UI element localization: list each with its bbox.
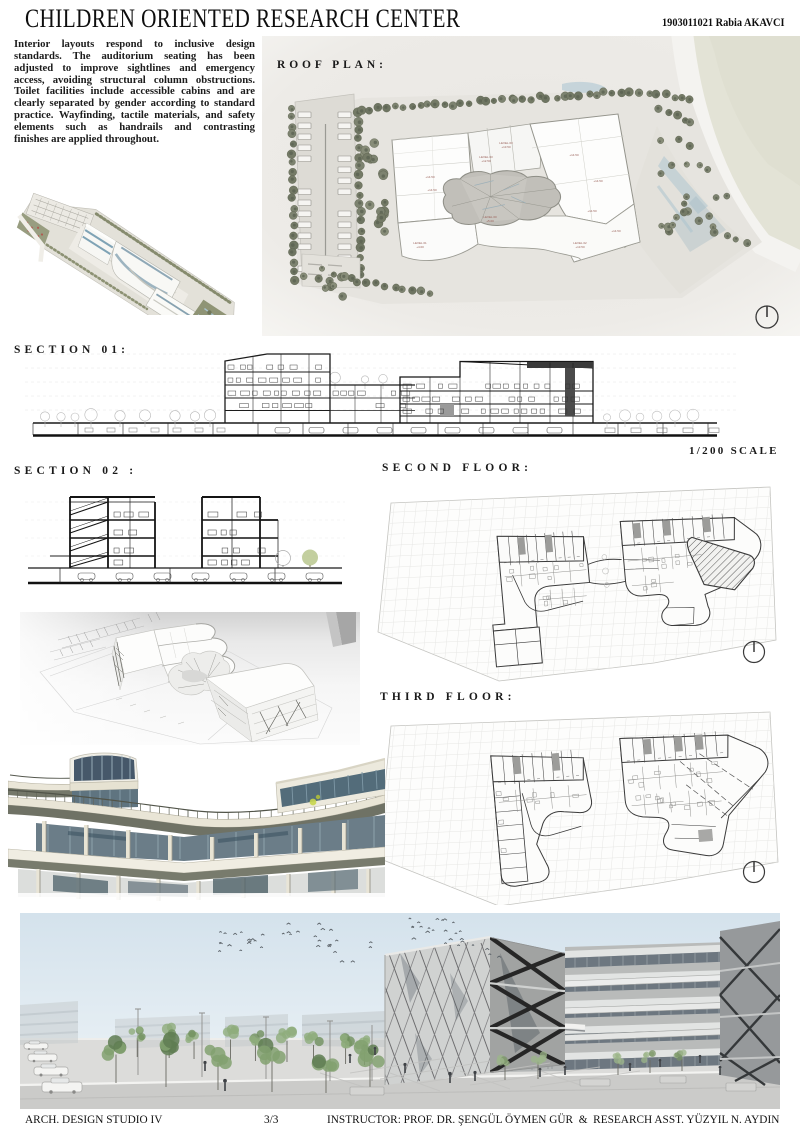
svg-text:+4.00: +4.00 <box>416 245 424 249</box>
svg-text:+14.50: +14.50 <box>593 179 603 183</box>
svg-text:+5.00: +5.00 <box>486 219 494 223</box>
svg-text:+13.50: +13.50 <box>575 245 585 249</box>
svg-text:+12.50: +12.50 <box>481 159 491 163</box>
svg-text:+14.50: +14.50 <box>425 175 435 179</box>
svg-text:+13.50: +13.50 <box>501 145 511 149</box>
svg-text:+14.50: +14.50 <box>587 209 597 213</box>
svg-text:+14.50: +14.50 <box>569 153 579 157</box>
svg-text:+14.50: +14.50 <box>427 188 437 192</box>
svg-text:+14.50: +14.50 <box>611 229 621 233</box>
